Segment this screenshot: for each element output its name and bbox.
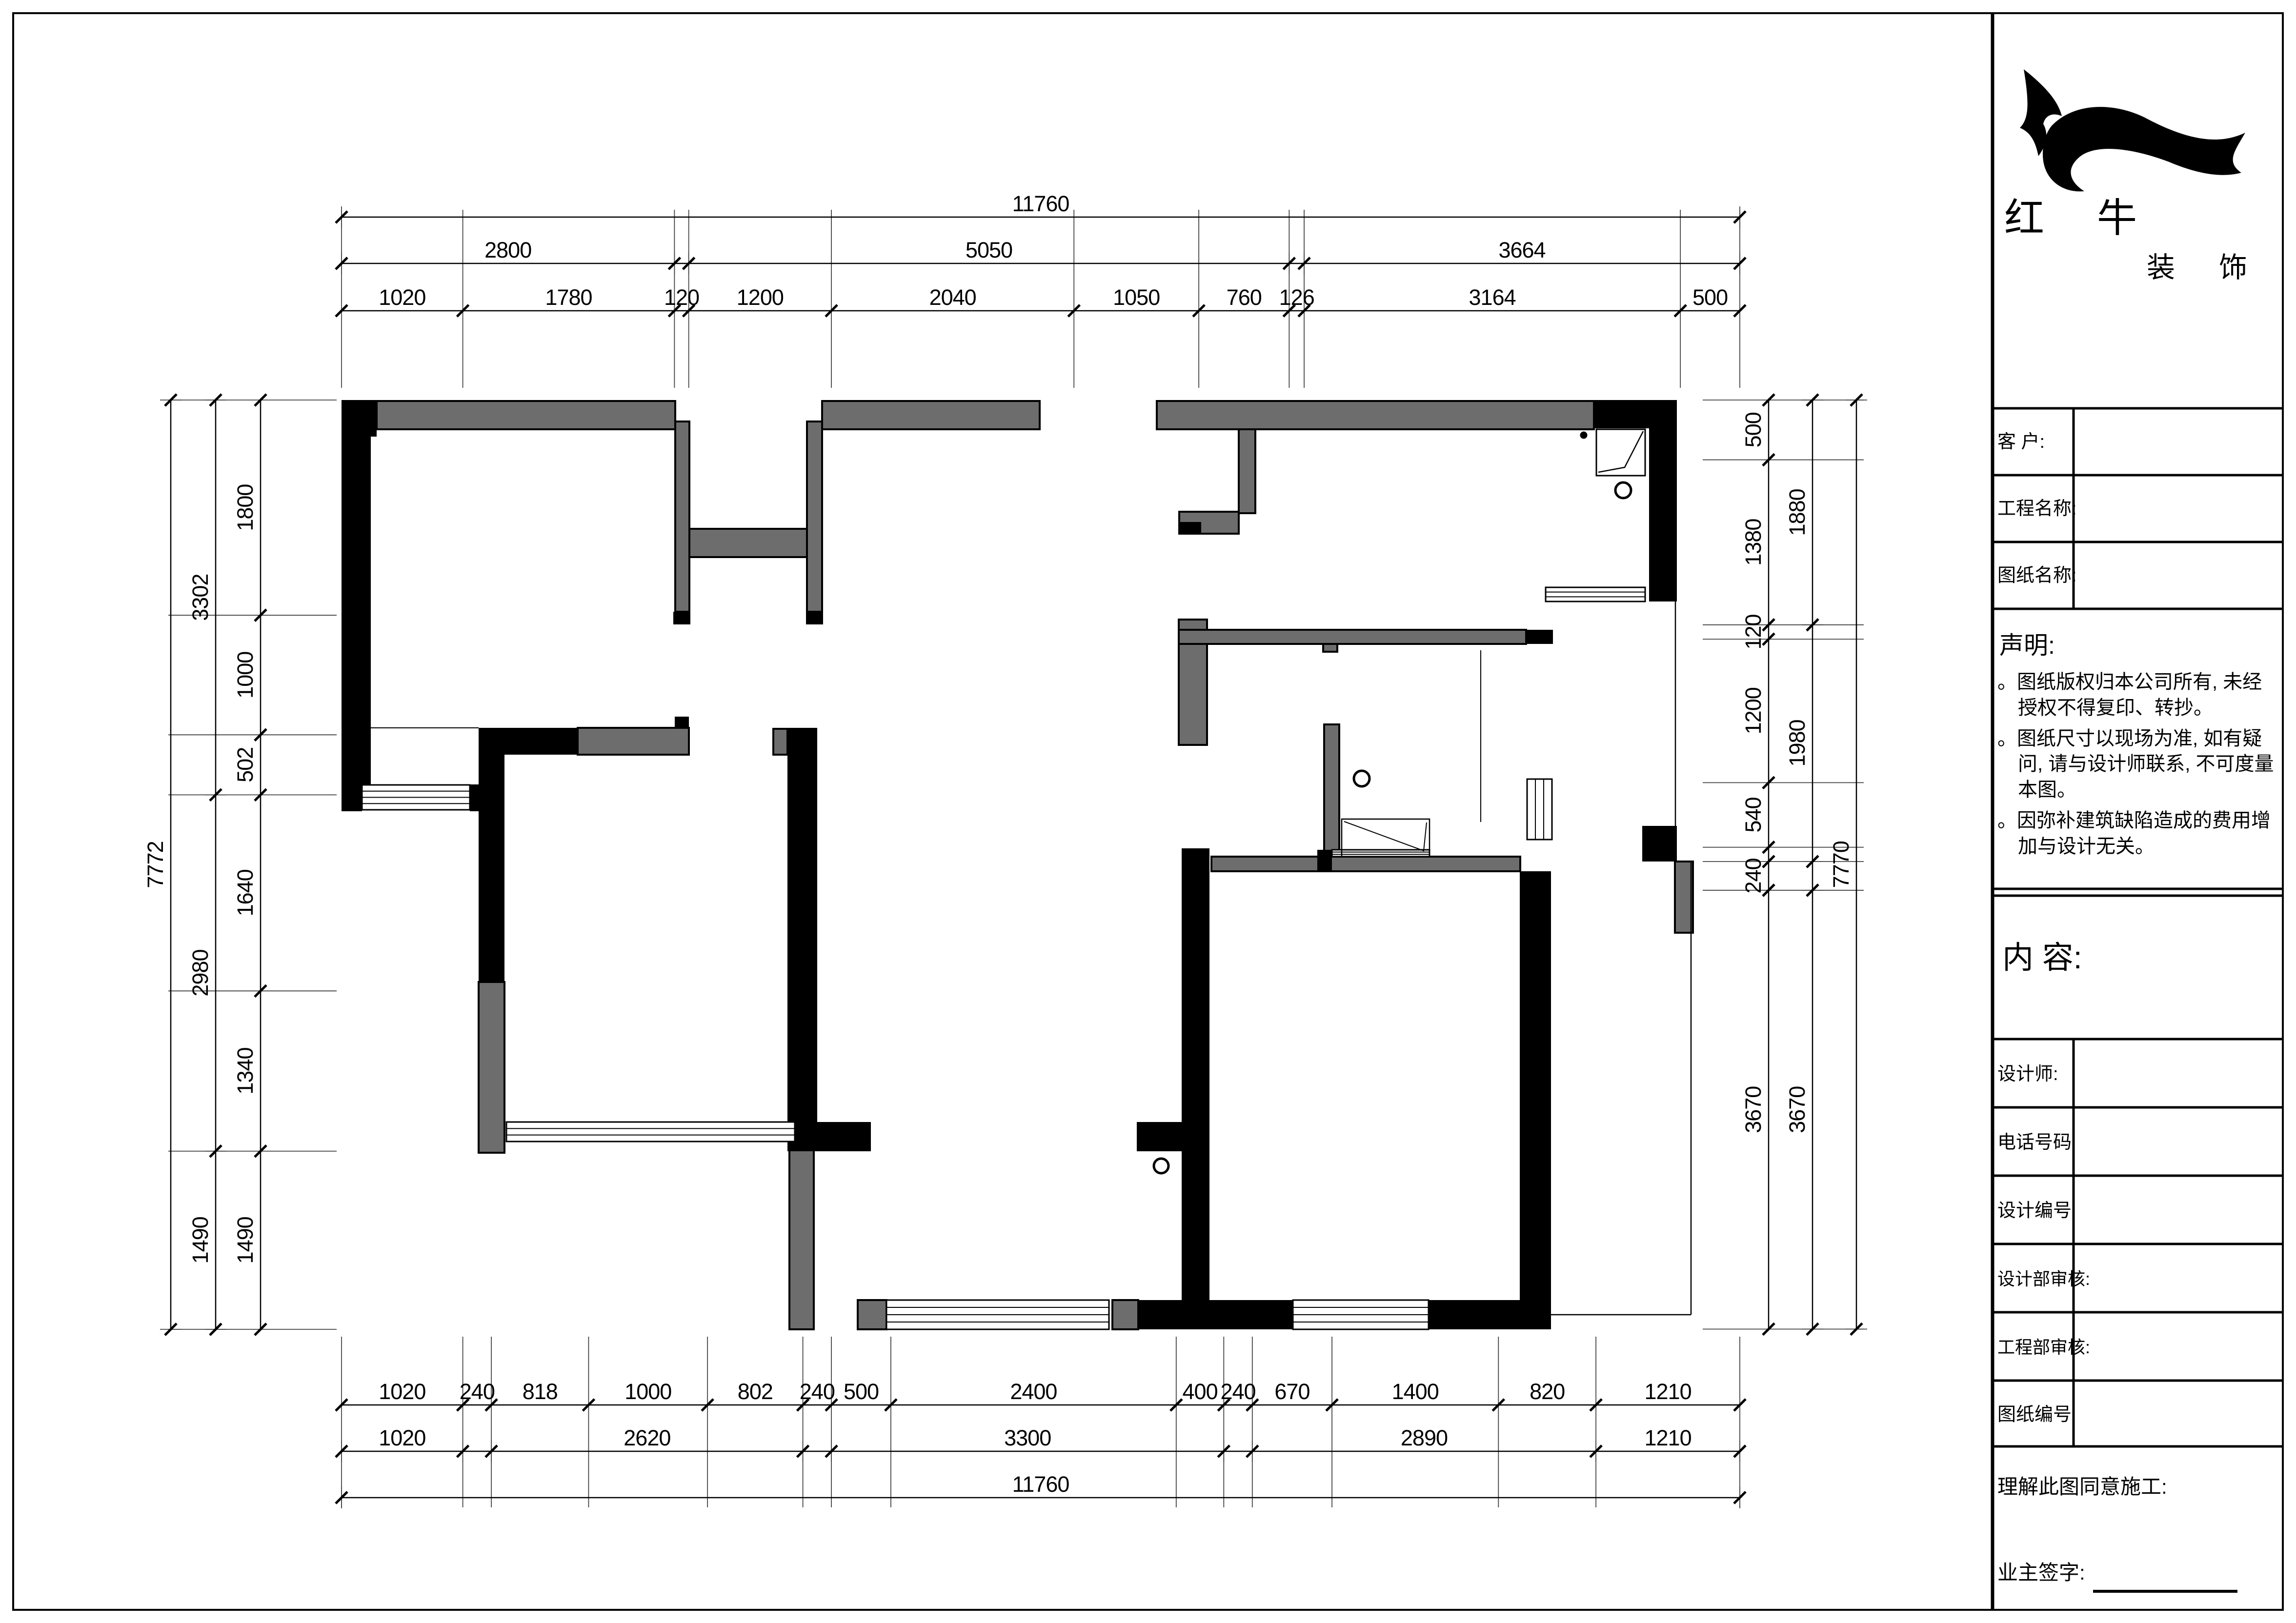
dimension-label: 1800 [233,484,258,531]
water-heater-fixture [1596,429,1645,476]
statement-item: 图纸尺寸以现场为准, 如有疑问, 请与设计师联系, 不可度量本图。 [2017,728,2274,801]
dimension-label: 11760 [1012,191,1069,216]
dimension-label: 240 [1741,858,1766,893]
footer-owner-sign: 业主签字: [1997,1561,2085,1584]
dimension-label: 1020 [379,285,425,310]
dimension-label: 2980 [188,950,213,997]
dimension-label: 1640 [233,869,258,916]
walls-gray [377,401,1693,1329]
dimension-label: 1050 [1113,285,1160,310]
dimension-label: 2800 [484,238,531,262]
dimension-label: 2620 [624,1425,670,1450]
field-design-review: 设计部审核: [1997,1269,2090,1289]
drawing-sheet: 1020178012012002040105076012631645002800… [0,0,2296,1623]
small-dot-icon [1581,432,1587,438]
field-engineer-review: 工程部审核: [1997,1337,2090,1357]
dimension-label: 1020 [379,1425,425,1450]
field-design-number: 设计编号 [1997,1201,2072,1221]
field-phone-number: 电话号码 [1997,1132,2072,1153]
dimension-label: 500 [844,1379,879,1404]
statement-title: 声明: [1999,632,2055,659]
dimension-label: 3300 [1004,1425,1051,1450]
dimension-label: 1380 [1741,519,1766,566]
door-knob-icon [1154,1159,1168,1173]
dimension-label: 802 [738,1379,773,1404]
terrace-outline [1551,601,1691,1315]
field-customer: 客 户: [1997,432,2045,452]
dimension-label: 120 [664,285,699,310]
dimension-label: 1490 [188,1217,213,1263]
dimension-label: 502 [233,747,258,782]
dimension-label: 240 [1221,1379,1256,1404]
dimension-label: 5050 [966,238,1012,262]
dimension-label: 3670 [1741,1086,1766,1133]
dimension-label: 2890 [1401,1425,1448,1450]
door-knob-icon [1615,482,1631,498]
dimension-label: 3164 [1469,285,1516,310]
company-logo [2020,69,2245,191]
dimension-label: 1200 [1741,687,1766,734]
dimension-label: 1980 [1785,720,1810,766]
dimension-label: 670 [1274,1379,1309,1404]
field-drawing-number: 图纸编号 [1997,1404,2072,1425]
company-name: 红牛 [2004,196,2190,240]
dimension-label: 2040 [929,285,976,310]
dimension-label: 120 [1741,614,1766,649]
dimension-label: 7772 [143,841,168,888]
dimension-label: 1880 [1785,489,1810,536]
windows [362,587,1645,1329]
field-drawing-name: 图纸名称: [1997,565,2077,586]
statement-body: 。图纸版权归本公司所有, 未经授权不得复印、转抄。 。图纸尺寸以现场为准, 如有… [1997,669,2276,887]
dimension-label: 1000 [233,652,258,699]
dimension-label: 820 [1530,1379,1565,1404]
statement-item: 图纸版权归本公司所有, 未经授权不得复印、转抄。 [2017,671,2262,719]
dimension-label: 818 [523,1379,558,1404]
dimension-label: 500 [1741,412,1766,447]
dimension-label: 240 [460,1379,495,1404]
dimension-label: 3664 [1498,238,1545,262]
dimension-label: 1020 [379,1379,425,1404]
dimension-label: 3302 [188,574,213,621]
dimension-label: 126 [1279,285,1314,310]
dimension-label: 1200 [737,285,784,310]
door-knob-icon [1354,771,1370,786]
dimension-label: 500 [1692,285,1728,310]
sheet-border [13,13,2283,1610]
floor-plan: 1020178012012002040105076012631645002800… [143,191,1867,1508]
dimension-label: 2400 [1010,1379,1057,1404]
dimension-label: 400 [1183,1379,1218,1404]
statement-item: 因弥补建筑缺陷造成的费用增加与设计无关。 [2017,810,2271,857]
content-label: 内 容: [2002,940,2082,975]
field-designer: 设计师: [1997,1064,2058,1084]
bull-swoosh-icon [2043,107,2245,191]
dimension-label: 1490 [233,1217,258,1263]
dimension-label: 540 [1741,797,1766,832]
dimension-label: 1400 [1392,1379,1439,1404]
dimension-label: 7770 [1829,841,1853,888]
footer-approval: 理解此图同意施工: [1997,1475,2167,1498]
title-block: 红牛 装饰 客 户: 工程名称: 图纸名称: 声明: 。图纸版权归本公司所有, … [1993,69,2291,1591]
company-sub: 装饰 [2147,252,2291,283]
dimension-label: 760 [1227,285,1262,310]
dimension-label: 240 [800,1379,835,1404]
dimension-label: 11760 [1012,1472,1069,1497]
dimension-label: 1210 [1645,1425,1692,1450]
dimension-label: 1000 [624,1379,671,1404]
dimension-label: 3670 [1785,1086,1810,1133]
field-project-name: 工程名称: [1997,499,2077,519]
dimension-label: 1340 [233,1048,258,1095]
dimension-label: 1210 [1645,1379,1692,1404]
dimension-label: 1780 [545,285,592,310]
